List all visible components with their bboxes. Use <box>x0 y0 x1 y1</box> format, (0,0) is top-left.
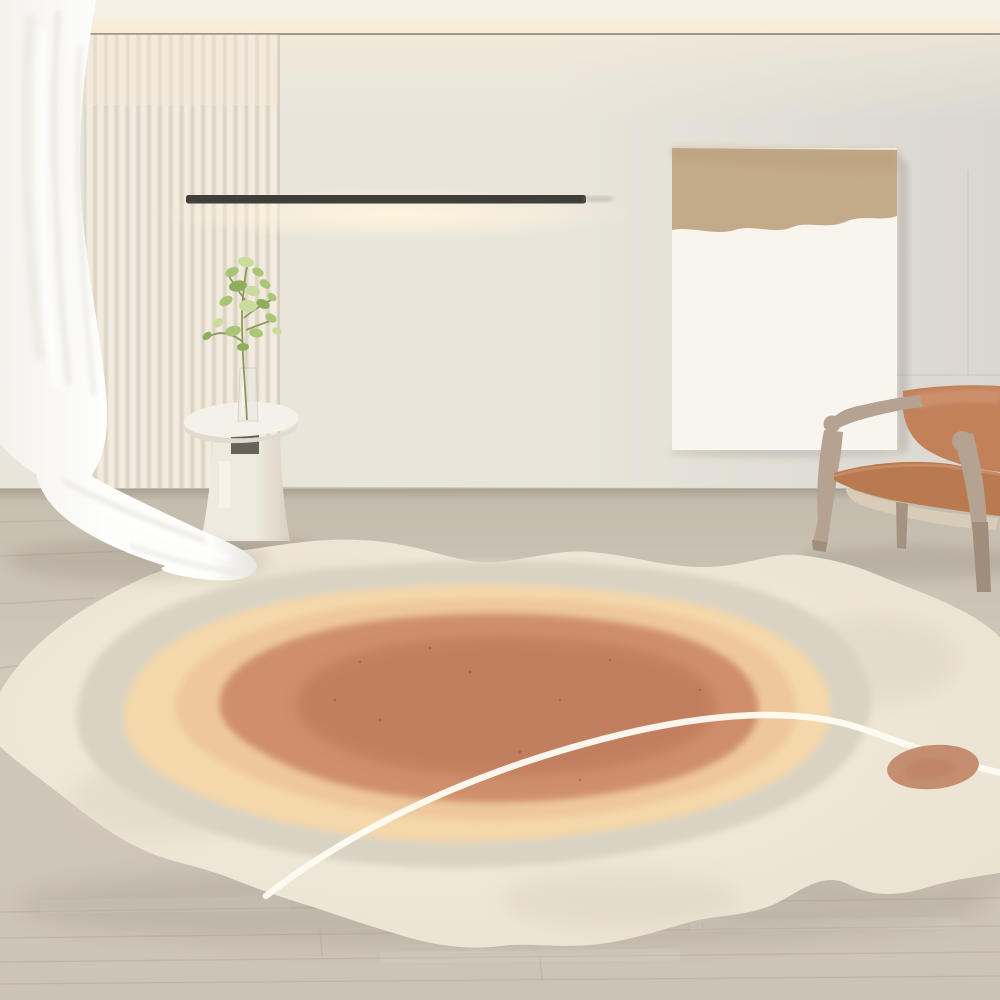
light-bar <box>186 195 586 204</box>
photo-stage <box>0 0 1000 1000</box>
rug-terracotta-core <box>296 637 716 777</box>
cove-light-glow <box>60 10 1000 34</box>
ceiling <box>0 0 1000 36</box>
slat-panel-warm-top <box>84 35 279 105</box>
chair-back-leg <box>896 502 908 549</box>
vase-highlight <box>243 372 244 418</box>
table-pedestal-slot <box>219 461 230 508</box>
room-scene <box>0 0 1000 1000</box>
rug <box>0 540 1000 948</box>
light-bar-end-fade <box>584 197 612 201</box>
linear-light <box>155 188 635 240</box>
glass-vase <box>238 368 258 421</box>
